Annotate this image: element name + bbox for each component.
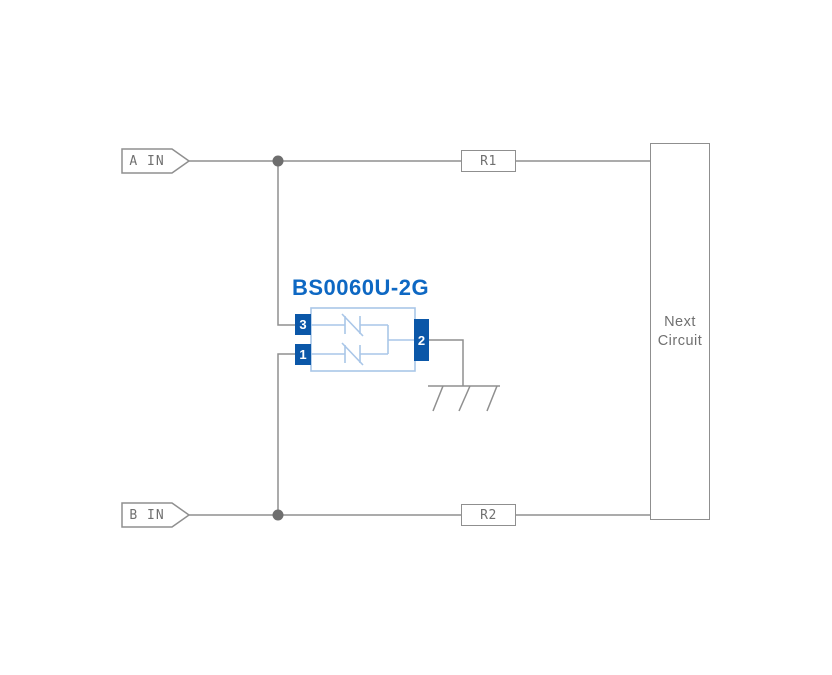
junction-dot-b-icon (273, 510, 284, 521)
next-circuit-line1: Next (664, 313, 696, 331)
chassis-ground-icon (428, 386, 500, 411)
suppressor-top-icon (311, 314, 388, 336)
wire-pin2-to-ground (429, 340, 463, 386)
junction-dot-a-icon (273, 156, 284, 167)
resistor-r2: R2 (461, 504, 516, 526)
next-circuit-block: Next Circuit (650, 143, 710, 520)
circuit-diagram: A IN B IN R1 R2 Next Circuit BS0060U-2G … (0, 0, 832, 675)
pin-3: 3 (295, 314, 311, 335)
wire-b-junction-to-pin1 (278, 354, 295, 515)
part-number-label: BS0060U-2G (292, 275, 429, 301)
a-in-label: A IN (122, 149, 172, 173)
pin-1: 1 (295, 344, 311, 365)
next-circuit-line2: Circuit (658, 332, 703, 350)
b-in-label: B IN (122, 503, 172, 527)
esd-component-symbol (311, 308, 415, 371)
pin-2: 2 (414, 319, 429, 361)
suppressor-bottom-icon (311, 343, 388, 365)
resistor-r1: R1 (461, 150, 516, 172)
